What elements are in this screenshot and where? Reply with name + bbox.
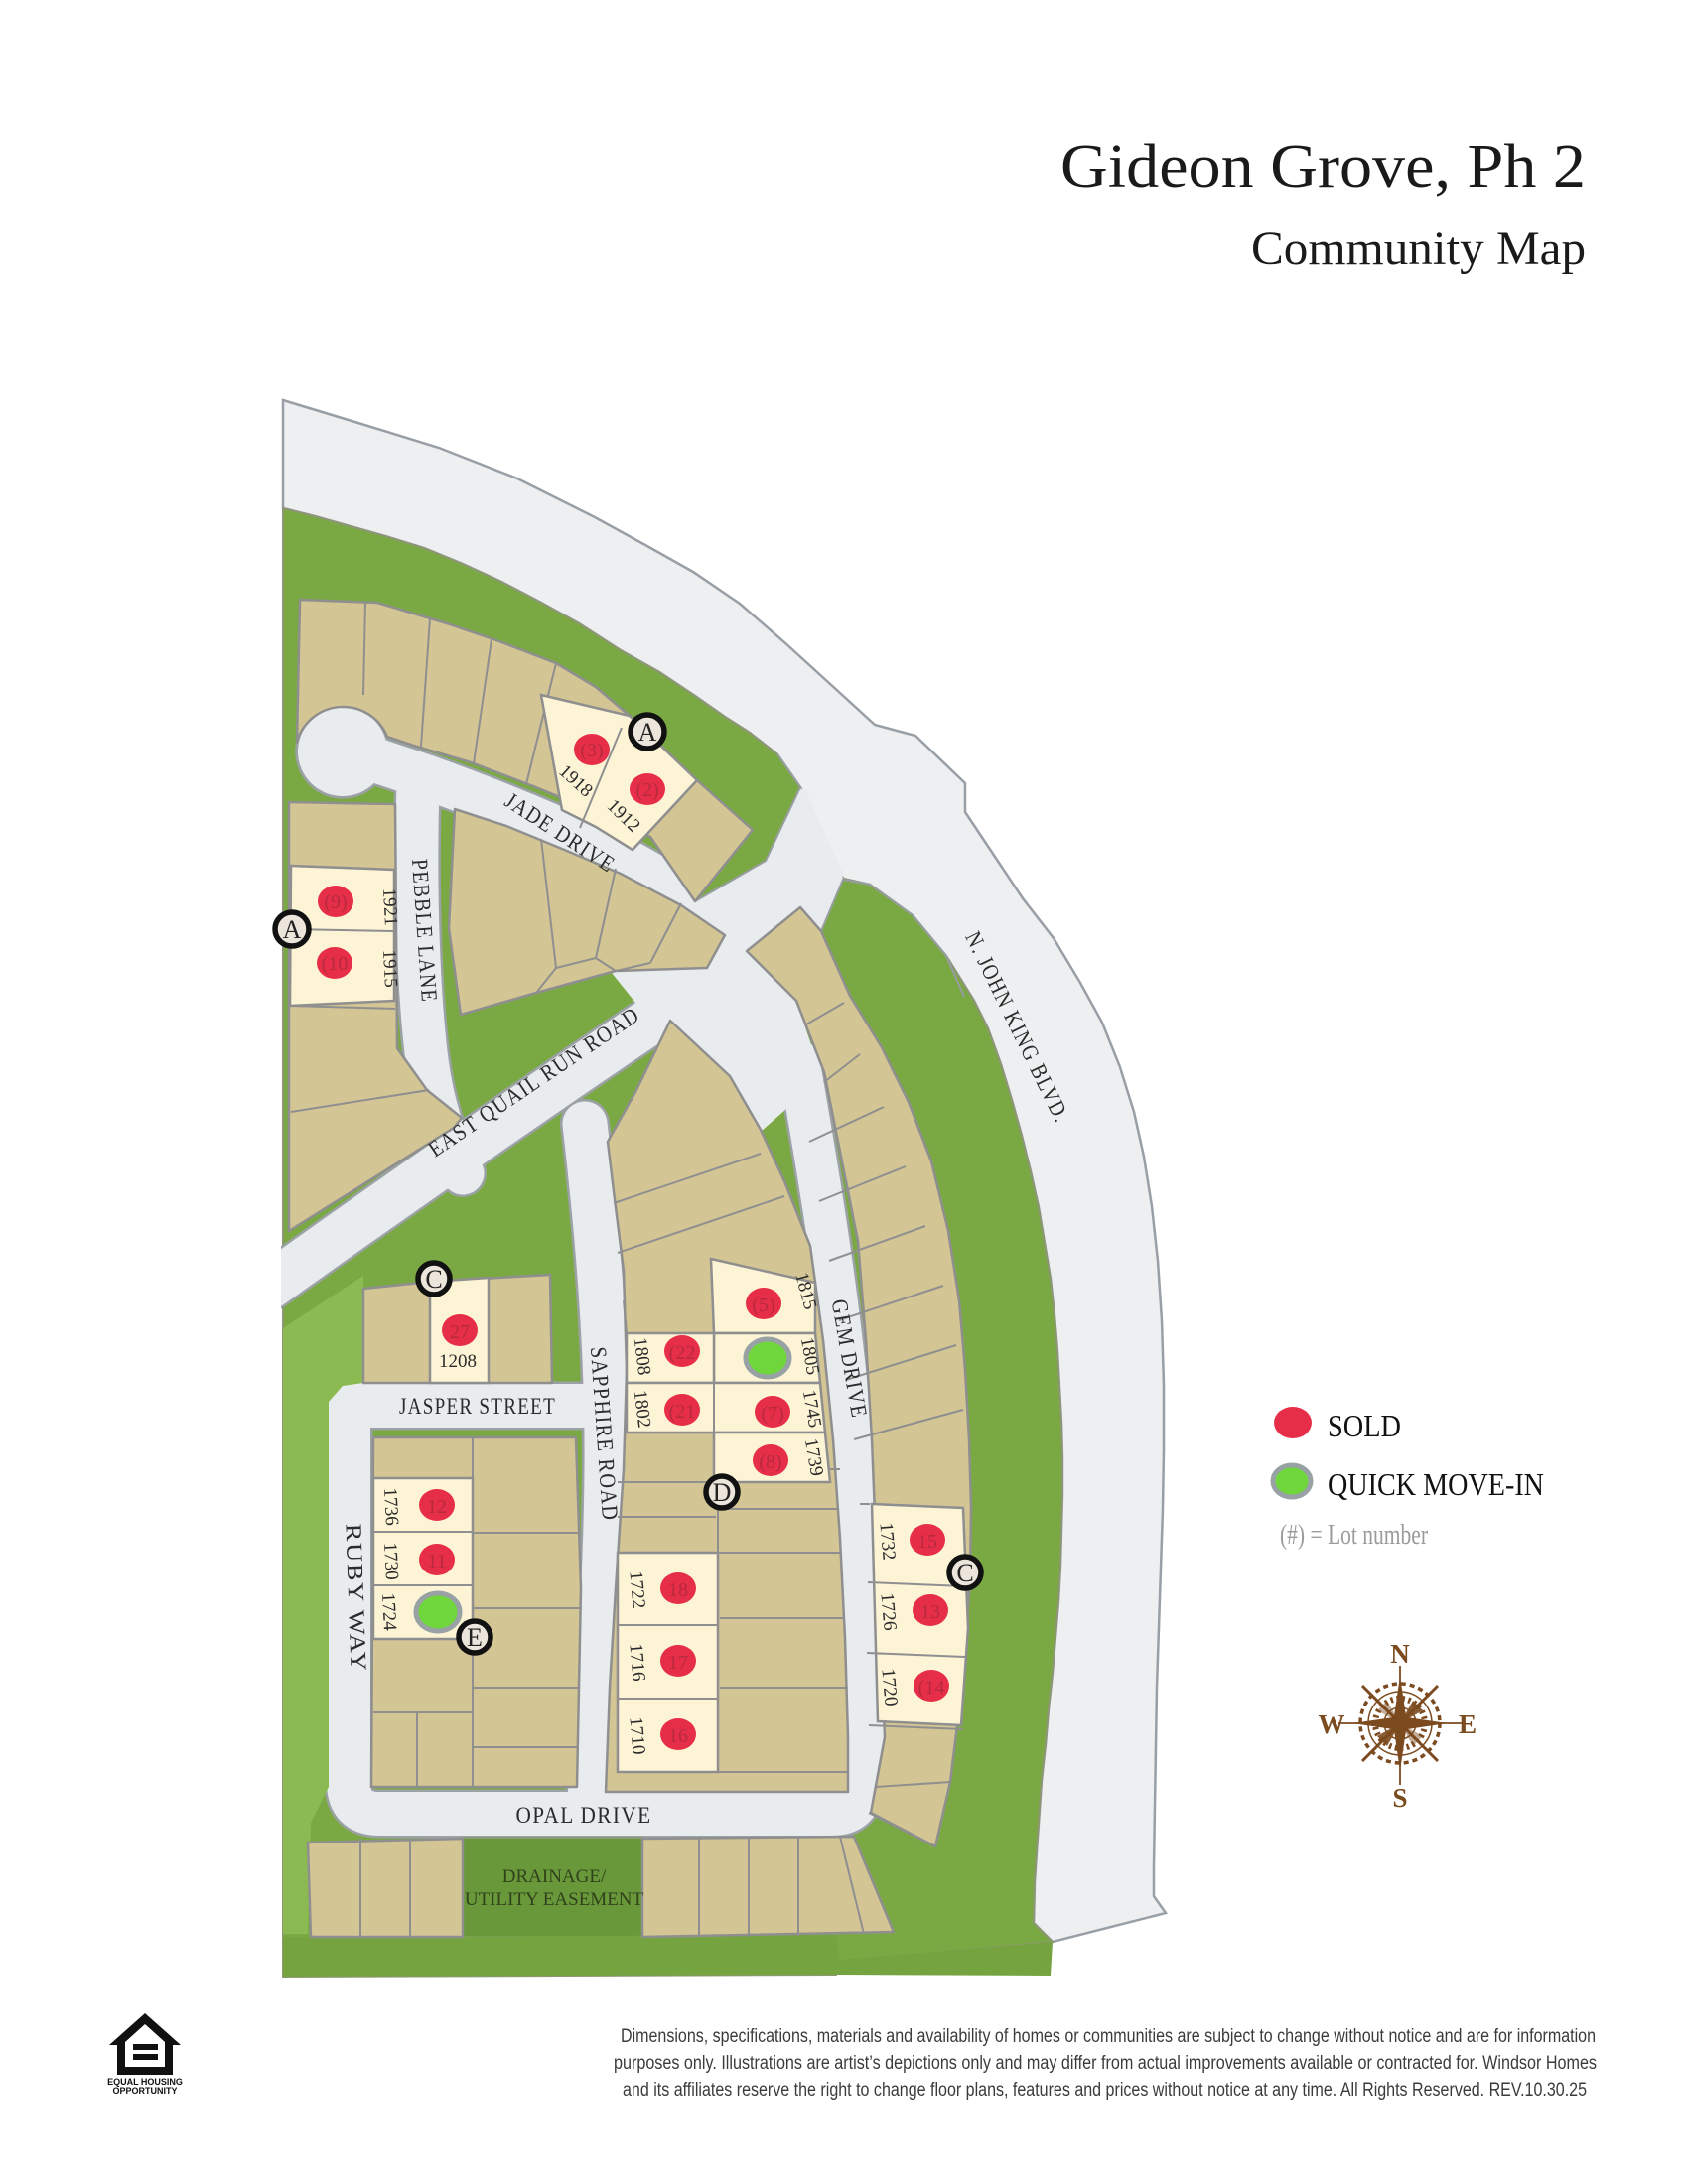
svg-text:D: D <box>713 1478 732 1507</box>
svg-text:13: 13 <box>920 1601 940 1623</box>
svg-text:RUBY WAY: RUBY WAY <box>341 1523 370 1673</box>
svg-text:1716: 1716 <box>625 1643 648 1683</box>
svg-text:(8): (8) <box>759 1451 781 1473</box>
svg-text:(3): (3) <box>580 740 603 761</box>
svg-text:S: S <box>1392 1783 1407 1813</box>
svg-text:DRAINAGE/: DRAINAGE/ <box>502 1866 607 1887</box>
svg-text:UTILITY EASEMENT: UTILITY EASEMENT <box>465 1889 644 1910</box>
svg-text:(#) = Lot number: (#) = Lot number <box>1280 1520 1429 1551</box>
svg-text:(21: (21 <box>669 1401 696 1423</box>
svg-text:18: 18 <box>668 1579 688 1601</box>
svg-text:1730: 1730 <box>379 1542 402 1580</box>
svg-text:(14: (14 <box>918 1677 945 1699</box>
svg-text:purposes only. Illustrations: purposes only. Illustrations are artist’… <box>614 2053 1597 2074</box>
svg-text:12: 12 <box>427 1496 447 1518</box>
svg-text:N: N <box>1390 1639 1410 1669</box>
svg-text:Dimensions, specifications, ma: Dimensions, specifications, materials an… <box>621 2026 1596 2047</box>
svg-text:E: E <box>1459 1709 1477 1739</box>
svg-text:(7): (7) <box>761 1403 783 1425</box>
svg-text:1732: 1732 <box>875 1522 899 1562</box>
svg-text:1921: 1921 <box>378 887 401 926</box>
svg-text:E: E <box>467 1623 483 1652</box>
svg-text:JASPER STREET: JASPER STREET <box>399 1394 556 1419</box>
svg-text:(5): (5) <box>752 1295 774 1316</box>
svg-text:A: A <box>638 718 657 747</box>
svg-text:OPPORTUNITY: OPPORTUNITY <box>112 2086 177 2096</box>
svg-text:(22: (22 <box>669 1342 696 1364</box>
svg-text:1724: 1724 <box>377 1592 400 1632</box>
svg-text:QUICK MOVE-IN: QUICK MOVE-IN <box>1328 1466 1544 1502</box>
svg-text:1722: 1722 <box>625 1570 648 1610</box>
svg-text:1915: 1915 <box>378 949 401 988</box>
svg-text:1208: 1208 <box>439 1351 477 1372</box>
svg-text:SOLD: SOLD <box>1328 1408 1401 1443</box>
svg-text:17: 17 <box>668 1652 688 1674</box>
svg-text:27: 27 <box>450 1321 470 1343</box>
svg-text:1736: 1736 <box>379 1487 402 1526</box>
svg-text:C: C <box>425 1265 442 1294</box>
svg-text:11: 11 <box>427 1551 446 1572</box>
svg-text:15: 15 <box>917 1531 937 1553</box>
svg-text:1710: 1710 <box>625 1716 648 1756</box>
svg-text:(2): (2) <box>635 779 658 801</box>
svg-text:(9): (9) <box>324 891 347 913</box>
svg-text:W: W <box>1319 1709 1345 1739</box>
svg-text:Community Map: Community Map <box>1251 222 1586 275</box>
svg-text:C: C <box>956 1559 973 1587</box>
svg-text:1720: 1720 <box>877 1668 901 1707</box>
svg-text:(10: (10 <box>322 953 349 975</box>
svg-text:A: A <box>283 915 302 944</box>
svg-text:1726: 1726 <box>876 1592 900 1632</box>
svg-text:OPAL DRIVE: OPAL DRIVE <box>516 1803 652 1828</box>
svg-text:Gideon Grove, Ph 2: Gideon Grove, Ph 2 <box>1060 133 1586 201</box>
svg-text:16: 16 <box>668 1725 688 1747</box>
svg-text:and its affiliates reserve the: and its affiliates reserve the right to … <box>623 2080 1587 2101</box>
